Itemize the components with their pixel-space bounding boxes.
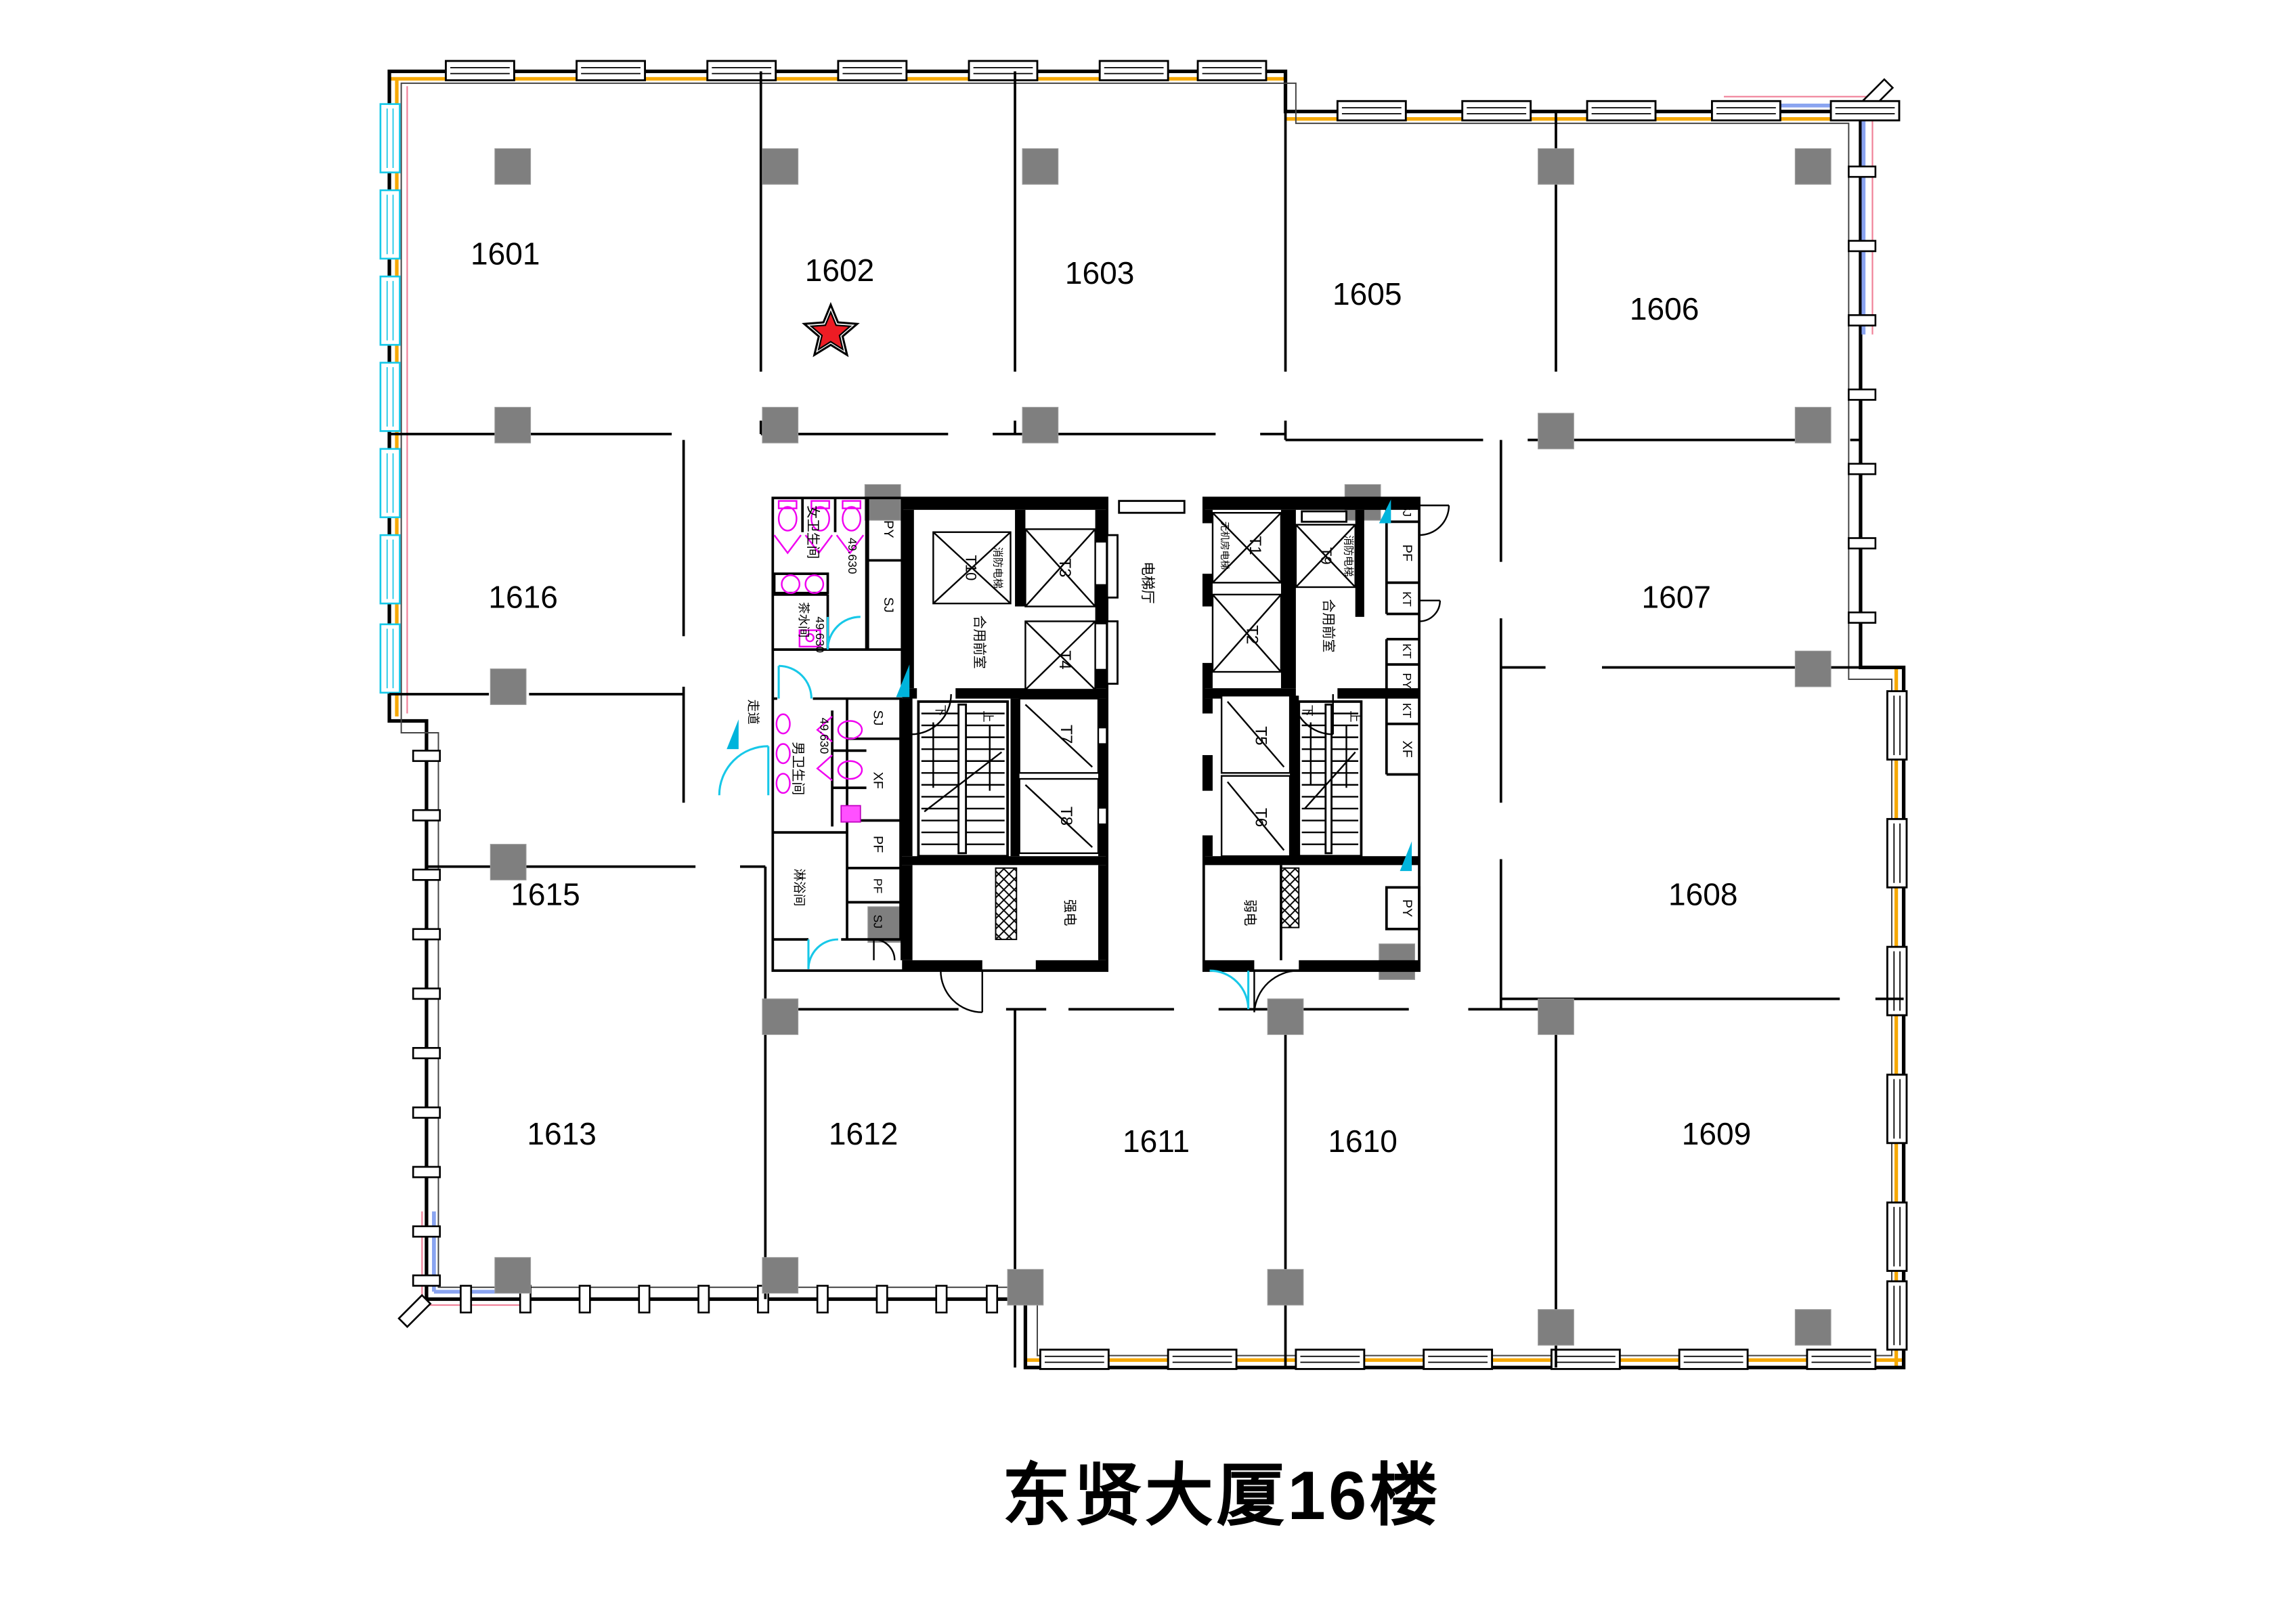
mens-wc-label: 男卫生间 — [790, 742, 805, 795]
pantry-label: 茶水间 — [797, 602, 810, 638]
room-label-1610: 1610 — [1328, 1124, 1398, 1159]
hall-sill — [1302, 511, 1347, 521]
fire-elevator-label-right: 消防电梯 — [1342, 535, 1354, 576]
room-label-1603: 1603 — [1065, 255, 1135, 291]
elevator-t5-label: T5 — [1252, 726, 1270, 745]
elevator-t7-label: T7 — [1057, 725, 1075, 744]
stair-down-label-right: 下 — [1301, 704, 1314, 717]
elevator-t3-label: T3 — [1056, 558, 1074, 577]
room-label-1602: 1602 — [805, 253, 875, 288]
stair-up-label-right: 上 — [1348, 710, 1362, 723]
elevator-door-slot — [1200, 791, 1215, 836]
elevator-t1-label: T1 — [1246, 536, 1264, 555]
shaft-sj3-label: SJ — [871, 915, 885, 928]
shaft-kt3-right-label: KT — [1400, 703, 1414, 719]
selected-room-marker — [804, 305, 857, 355]
shaft-sj-label: SJ — [881, 597, 896, 613]
floor-title: 东贤大厦16楼 — [1002, 1458, 1441, 1534]
shaft-pf2-label: PF — [871, 878, 885, 894]
elevator-t4-label: T4 — [1056, 650, 1074, 669]
corridor-label: 走道 — [746, 700, 760, 725]
floor-plan-drawing: 女卫生间 49.630 茶水间 49.630 男卫生间 49.630 淋浴间 走… — [0, 0, 2296, 1601]
room-label-1615: 1615 — [511, 877, 580, 912]
shaft-sj-right-label: SJ — [1400, 503, 1414, 517]
stair-up-label-left: 上 — [981, 710, 995, 723]
hall-sill — [1119, 501, 1185, 513]
room-label-1609: 1609 — [1682, 1116, 1752, 1151]
weak-electric-shaft — [1281, 868, 1299, 928]
level-mark: 49.630 — [818, 718, 831, 754]
shaft-pf-right-label: PF — [1400, 545, 1414, 561]
strong-electric-shaft — [996, 868, 1017, 939]
elevator-door-slot — [1107, 535, 1117, 597]
room-label-1605: 1605 — [1333, 276, 1402, 312]
left-core — [719, 498, 1184, 1012]
shaft-py-label: PY — [881, 520, 896, 538]
elevator-t8-label: T8 — [1057, 807, 1075, 826]
elevator-hall-label: 电梯厅 — [1140, 561, 1155, 604]
room-label-1608: 1608 — [1668, 877, 1738, 912]
weak-electric-label: 弱电 — [1242, 899, 1257, 926]
strong-electric-label: 强电 — [1062, 899, 1077, 926]
room-label-1611: 1611 — [1123, 1124, 1190, 1159]
curtain-wall-windows — [381, 61, 1907, 1369]
shaft-kt-right-label: KT — [1400, 591, 1414, 607]
floor-plan-page: 女卫生间 49.630 茶水间 49.630 男卫生间 49.630 淋浴间 走… — [0, 0, 2296, 1601]
elevator-t2-label: T2 — [1242, 625, 1261, 644]
structural-columns — [490, 148, 1831, 1345]
building-perimeter — [389, 71, 1904, 1367]
room-label-1601: 1601 — [471, 236, 540, 272]
room-label-1613: 1613 — [527, 1116, 597, 1151]
shower-room-label: 淋浴间 — [792, 868, 806, 906]
room-label-1616: 1616 — [488, 580, 558, 615]
shaft-xf-right-label: XF — [1400, 741, 1414, 758]
corner-mullion-sw — [399, 1296, 431, 1327]
vestibule-label-left: 合用前室 — [972, 616, 987, 669]
elevator-door-slot — [1200, 714, 1215, 755]
room-label-1612: 1612 — [829, 1116, 898, 1151]
level-mark: 49.630 — [813, 616, 827, 653]
stairs-left — [918, 702, 1008, 856]
mrl-elevator-label: 无机房电梯 — [1219, 521, 1230, 570]
shaft-py-right-label: PY — [1400, 673, 1414, 689]
shaft-sj2-label: SJ — [871, 710, 886, 726]
room-label-1606: 1606 — [1630, 291, 1699, 326]
elevator-door-slot — [1107, 621, 1117, 683]
shaft-kt2-right-label: KT — [1400, 643, 1414, 659]
room-label-1607: 1607 — [1641, 580, 1711, 615]
level-mark: 49.630 — [846, 538, 859, 574]
elevator-t9-label: T9 — [1318, 547, 1335, 565]
elevator-t6-label: T6 — [1252, 808, 1270, 827]
womens-wc-label: 女卫生间 — [805, 505, 820, 559]
vestibule-label-right: 合用前室 — [1321, 599, 1336, 653]
shaft-xf-label: XF — [871, 772, 886, 789]
shaft-pf-label: PF — [871, 836, 886, 853]
shaft-py2-right-label: PY — [1400, 899, 1414, 917]
fire-elevator-label-left: 消防电梯 — [991, 547, 1003, 589]
elevator-t10-label: T10 — [963, 555, 980, 581]
interior-partitions — [389, 71, 1904, 1367]
stair-down-label-left: 下 — [934, 704, 947, 717]
